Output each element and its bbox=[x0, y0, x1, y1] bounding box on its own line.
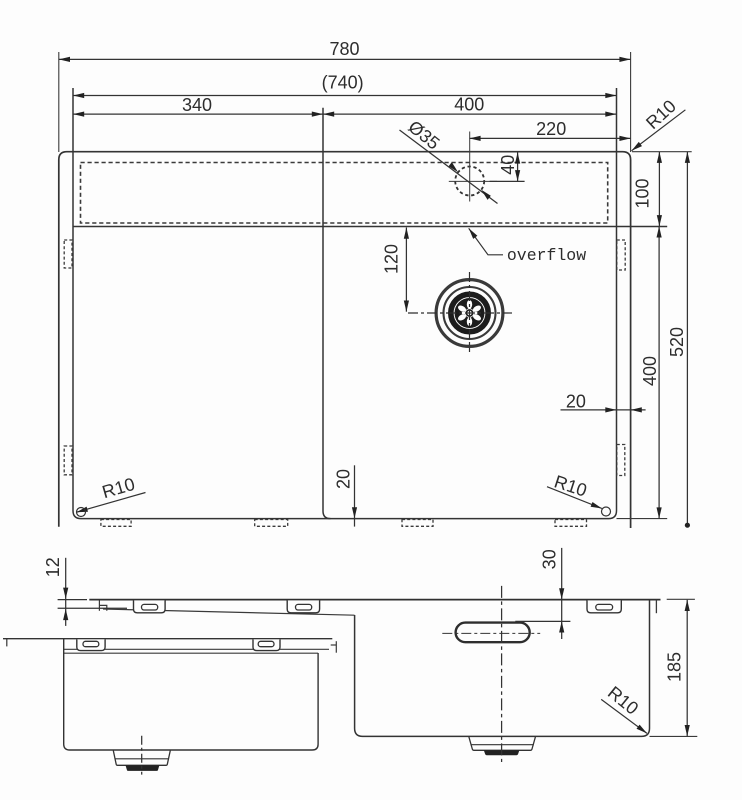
svg-text:40: 40 bbox=[498, 155, 518, 175]
svg-text:340: 340 bbox=[182, 95, 212, 115]
svg-text:30: 30 bbox=[539, 549, 559, 569]
svg-text:780: 780 bbox=[329, 39, 359, 59]
svg-text:185: 185 bbox=[665, 652, 685, 682]
svg-text:20: 20 bbox=[334, 469, 354, 489]
svg-text:520: 520 bbox=[667, 327, 687, 357]
svg-text:(740): (740) bbox=[322, 72, 364, 92]
svg-text:overflow: overflow bbox=[507, 246, 586, 265]
svg-text:400: 400 bbox=[454, 94, 484, 114]
svg-text:12: 12 bbox=[43, 557, 63, 577]
svg-text:220: 220 bbox=[536, 119, 566, 139]
svg-text:20: 20 bbox=[566, 391, 586, 411]
svg-text:100: 100 bbox=[633, 178, 653, 208]
svg-text:120: 120 bbox=[382, 244, 402, 274]
svg-text:400: 400 bbox=[640, 356, 660, 386]
